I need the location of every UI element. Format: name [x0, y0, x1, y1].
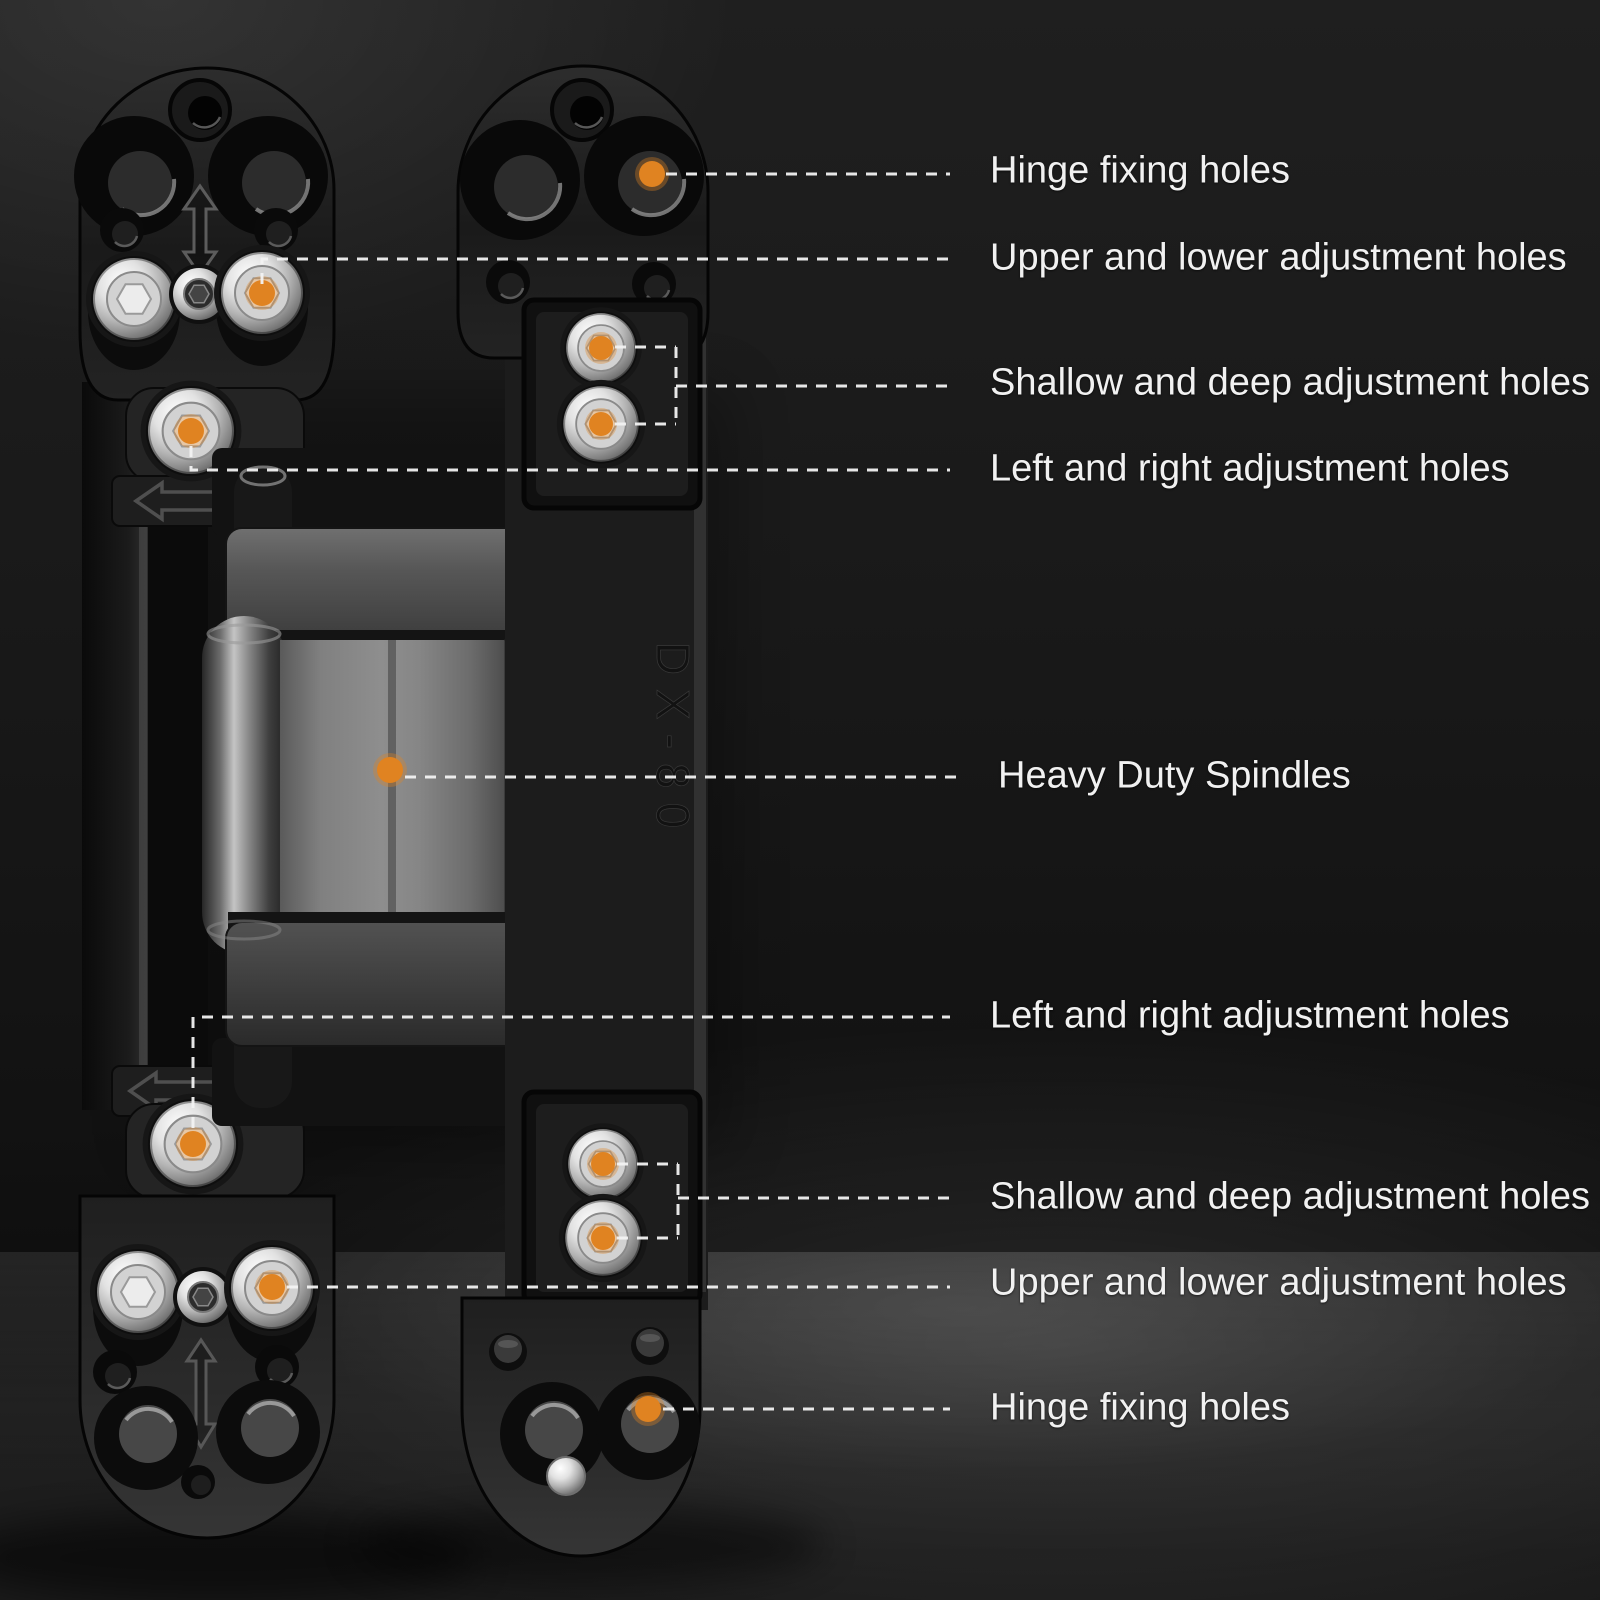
marker-shallow-top — [585, 332, 617, 364]
marker-shallow-bottom — [587, 1148, 619, 1180]
marker-deep-bottom — [587, 1222, 619, 1254]
marker-hinge-fixing-top — [635, 157, 669, 191]
left-spindle-cylinder — [202, 616, 286, 954]
annotation-left-right-adjustment-holes-bottom: Left and right adjustment holes — [990, 995, 1510, 1038]
annotation-heavy-duty-spindles: Heavy Duty Spindles — [998, 755, 1351, 798]
engraving-text: DX-80 — [647, 642, 699, 842]
annotation-left-right-adjustment-holes-top: Left and right adjustment holes — [990, 448, 1510, 491]
annotation-shallow-deep-adjustment-holes-bottom: Shallow and deep adjustment holes — [990, 1176, 1590, 1219]
marker-left-right-bottom — [176, 1127, 210, 1161]
marker-hinge-fixing-bottom — [631, 1392, 665, 1426]
product-annotation-scene: DX-80 — [0, 0, 1600, 1600]
annotation-hinge-fixing-holes-top: Hinge fixing holes — [990, 150, 1290, 193]
marker-upper-lower-bottom — [255, 1270, 289, 1304]
annotation-shallow-deep-adjustment-holes-top: Shallow and deep adjustment holes — [990, 362, 1590, 405]
annotation-upper-lower-adjustment-holes-top: Upper and lower adjustment holes — [990, 237, 1567, 280]
marker-left-right-top — [174, 414, 208, 448]
annotation-hinge-fixing-holes-bottom: Hinge fixing holes — [990, 1387, 1290, 1430]
dowel-pin — [547, 1457, 585, 1495]
annotation-upper-lower-adjustment-holes-bottom: Upper and lower adjustment holes — [990, 1262, 1567, 1305]
marker-spindle — [373, 753, 407, 787]
marker-deep-top — [585, 408, 617, 440]
